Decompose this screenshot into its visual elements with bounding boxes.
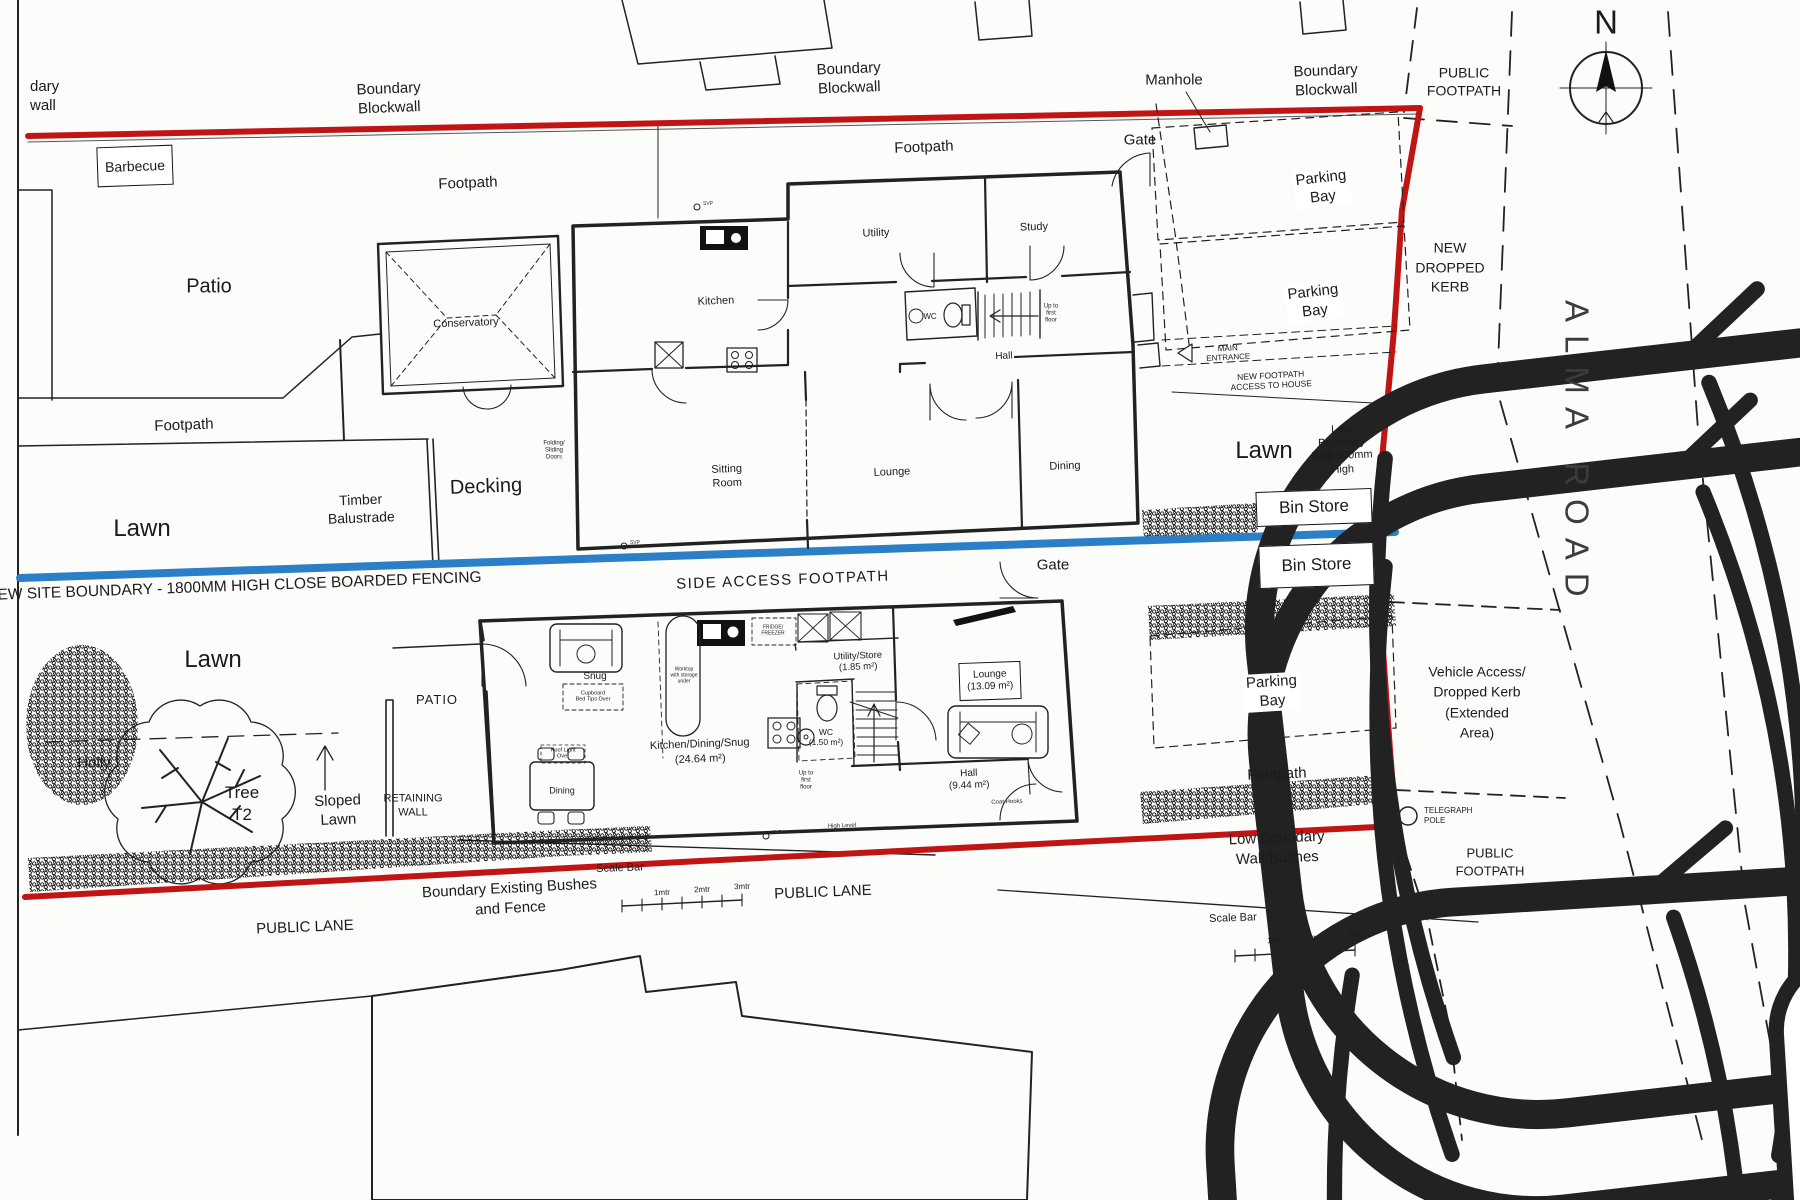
sheet-frame bbox=[18, 0, 52, 1135]
label-up-first-floor-upper: Up to first floor bbox=[1044, 304, 1058, 325]
scale-tick-1m: 1mtr bbox=[654, 888, 670, 899]
label-footpath-nw: Footpath bbox=[438, 173, 498, 194]
label-telegraph-pole: TELEGRAPH POLE bbox=[1424, 806, 1472, 827]
label-parking-bay-1: Parking Bay bbox=[1292, 166, 1353, 210]
label-footpath-se: Footpath bbox=[1247, 764, 1307, 785]
label-public-lane-1: PUBLIC LANE bbox=[256, 917, 354, 939]
scale2-tick-3m: 3mtr bbox=[1347, 930, 1363, 941]
label-fridge-freezer: FRIDGE/ FREEZER bbox=[761, 625, 784, 637]
north-compass-icon bbox=[1560, 42, 1652, 134]
svp-label-1: SVP bbox=[703, 202, 713, 208]
label-dining-lower: Dining bbox=[549, 785, 575, 796]
site-plan-drawing: dary wall Boundary Blockwall Boundary Bl… bbox=[0, 0, 1800, 1200]
label-cupboard-bed: Cupboard Bed Tips Over bbox=[576, 691, 611, 704]
label-new-dropped-kerb: NEW DROPPED KERB bbox=[1415, 239, 1484, 298]
label-bin-store-1: Bin Store bbox=[1255, 488, 1372, 527]
neighbor-building-outlines bbox=[622, 0, 1346, 90]
label-up-first-floor-lower: Up to first floor bbox=[799, 771, 813, 792]
label-hall-lower: Hall (9.44 m²) bbox=[948, 767, 989, 793]
manhole-icon bbox=[1194, 125, 1228, 149]
label-lounge-upper: Lounge bbox=[873, 465, 910, 480]
label-scale-bar-2: Scale Bar bbox=[1209, 911, 1257, 927]
scale-tick-3m: 3mtr bbox=[734, 882, 750, 893]
label-alma-road: ALMA ROAD bbox=[1556, 300, 1597, 610]
label-holly: Holly bbox=[77, 755, 110, 774]
label-decking: Decking bbox=[449, 473, 522, 501]
label-gate-mid: Gate bbox=[1037, 557, 1070, 576]
scale2-tick-1m: 1mtr bbox=[1267, 936, 1283, 947]
label-utility-store: Utility/Store (1.85 m²) bbox=[833, 650, 882, 675]
label-manhole: Manhole bbox=[1145, 72, 1203, 91]
label-retaining-wall: RETAINING WALL bbox=[383, 792, 442, 820]
label-folding-sliding-doors: Folding/ Sliding Doors bbox=[543, 441, 564, 462]
label-vehicle-access: Vehicle Access/ Dropped Kerb (Extended A… bbox=[1428, 661, 1525, 742]
label-parking-bay-3: Parking Bay bbox=[1242, 672, 1301, 713]
label-tree-t2: Tree T2 bbox=[225, 782, 259, 826]
lower-house-plan bbox=[480, 601, 1077, 843]
label-snug: Snug bbox=[583, 671, 606, 684]
label-lawn-right: Lawn bbox=[1235, 436, 1292, 466]
label-public-footpath-bottom: PUBLIC FOOTPATH bbox=[1456, 844, 1525, 879]
label-parking-bay-2: Parking Bay bbox=[1284, 280, 1345, 324]
label-sloped-lawn: Sloped Lawn bbox=[314, 791, 362, 830]
gate-swing-top bbox=[1112, 153, 1150, 186]
label-lounge-lower: Lounge (13.09 m²) bbox=[958, 661, 1021, 701]
label-sitting-room: Sitting Room bbox=[711, 463, 743, 492]
label-coat-hooks: Coat Hooks bbox=[991, 799, 1023, 808]
label-footpath-n: Footpath bbox=[894, 137, 954, 158]
label-roof-light: Roof Light Over bbox=[550, 748, 575, 761]
label-patio-upper: Patio bbox=[186, 275, 232, 300]
label-conservatory: Conservatory bbox=[433, 316, 499, 332]
label-timber-balustrade: Timber Balustrade bbox=[327, 490, 395, 528]
new-site-boundary-blue-line bbox=[20, 532, 1395, 578]
label-footpath-west: Footpath bbox=[154, 415, 214, 436]
label-public-footpath-top: PUBLIC FOOTPATH bbox=[1427, 65, 1501, 100]
label-worktop: Worktop with storage under bbox=[671, 667, 698, 684]
label-study: Study bbox=[1020, 221, 1049, 236]
label-wc-lower: WC (1.50 m²) bbox=[809, 727, 843, 747]
label-public-lane-2: PUBLIC LANE bbox=[774, 882, 872, 904]
label-hall-upper: Hall bbox=[995, 350, 1013, 363]
scale-tick-2m: 2mtr bbox=[694, 885, 710, 896]
label-kitchen-dining-snug: Kitchen/Dining/Snug (24.64 m²) bbox=[650, 735, 751, 768]
telegraph-pole-icon bbox=[1399, 807, 1417, 825]
label-boundary-wall-partial: dary wall bbox=[30, 78, 59, 116]
label-main-entrance: MAIN ENTRANCE bbox=[1206, 343, 1251, 364]
label-barbecue: Barbecue bbox=[96, 145, 173, 188]
label-lawn-lower-left: Lawn bbox=[184, 645, 241, 675]
svp-label-3: SVP bbox=[772, 831, 782, 837]
label-scale-bar-1: Scale Bar bbox=[596, 861, 644, 877]
label-gate-top: Gate bbox=[1124, 132, 1157, 151]
label-kitchen-upper: Kitchen bbox=[697, 294, 734, 309]
gate-swing-mid bbox=[1000, 562, 1038, 598]
label-high-level: High Level bbox=[828, 823, 857, 832]
label-utility-upper: Utility bbox=[862, 227, 889, 242]
scale-bar-graphics bbox=[622, 894, 1355, 962]
scale2-tick-2m: 2mtr bbox=[1307, 933, 1323, 944]
main-entrance-arrow-icon bbox=[1178, 344, 1192, 362]
svp-label-2: SVP bbox=[630, 541, 640, 547]
label-patio-lower: PATIO bbox=[416, 692, 458, 708]
label-low-boundary-wall-high: Low Boundary Wall 900mm High bbox=[1311, 422, 1374, 477]
label-boundary-blockwall-left: Boundary Blockwall bbox=[356, 79, 422, 119]
site-plan-linework bbox=[0, 0, 1800, 1200]
label-north: N bbox=[1594, 1, 1618, 42]
label-bin-store-2: Bin Store bbox=[1258, 542, 1374, 589]
label-boundary-blockwall-right: Boundary Blockwall bbox=[1293, 61, 1359, 101]
label-boundary-blockwall-mid: Boundary Blockwall bbox=[816, 59, 882, 99]
label-lawn-upper-left: Lawn bbox=[113, 514, 170, 544]
label-wc-upper: WC bbox=[923, 312, 936, 322]
label-dining-upper: Dining bbox=[1049, 460, 1081, 475]
label-low-boundary-wall-bushes: Low Boundary Wall/Bushes bbox=[1228, 827, 1325, 870]
